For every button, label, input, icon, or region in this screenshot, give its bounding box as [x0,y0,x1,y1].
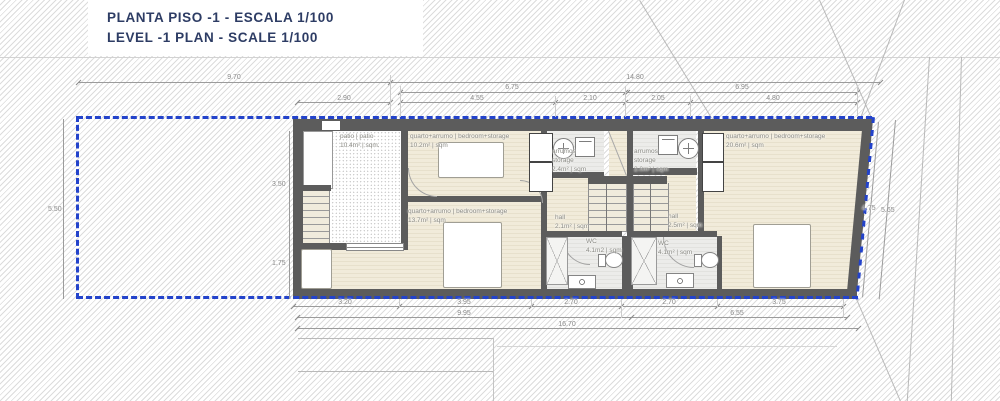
extension-line [400,86,401,117]
dim-line [400,92,625,93]
dim-line [297,328,858,329]
dim-label: 2.70 [564,299,578,306]
staircase-left [588,183,627,232]
room-label-bedroom-storage-3: quarto+arrumo | bedroom+storage 20.6m² |… [726,133,825,151]
dim-label: 2.05 [651,95,665,102]
room-label-bedroom-storage-2: quarto+arrumo | bedroom+storage 13.7m² |… [408,208,507,226]
dim-label: 4.75 [862,205,876,212]
dim-label: 2.70 [662,299,676,306]
dim-line [531,306,621,307]
dim-label: 3.20 [338,299,352,306]
bed-icon [753,224,811,288]
extension-line [621,299,622,318]
washing-machine-icon [678,138,699,159]
window-patio [346,243,404,251]
dim-label: 1.75 [272,260,286,267]
door-opening-patio [322,121,340,130]
dim-label: 3.50 [272,181,286,188]
dim-line [690,102,857,103]
dim-line [627,317,847,318]
dim-line [555,102,625,103]
dim-line [390,82,880,83]
closet-icon [529,162,553,192]
extension-line [555,96,556,117]
cabinet-icon [301,249,332,289]
stair-rail [606,183,607,232]
shower-icon [631,237,657,285]
dim-label: 3.95 [457,299,471,306]
sink-icon [568,275,596,289]
room-label-storage-1: arrumos storage 2.4m² | sqm [552,148,586,174]
extension-line [625,86,626,117]
site-line [298,371,493,372]
dim-label: 16.70 [558,321,576,328]
dim-label: 6.75 [505,84,519,91]
dim-label: 14.80 [626,74,644,81]
sink-icon [666,273,694,288]
room-label-patio: patio | patio 10.4m² | sqm. [340,133,380,151]
room-label-bedroom-storage-1: quarto+arrumo | bedroom+storage 10.2m² |… [410,133,509,151]
dim-line [289,131,290,243]
property-line-top [77,116,872,119]
bed-icon [443,222,502,288]
extension-line [690,96,691,117]
site-line [497,346,837,347]
dim-label: 6.55 [730,310,744,317]
room-label-wc-1: WC 4.1m2 | sqm [586,238,622,256]
extension-line [843,299,844,318]
dim-label: 2.90 [337,95,351,102]
dim-label: 9.95 [457,310,471,317]
wall-wc1-right [622,236,627,289]
dim-line [627,92,857,93]
dim-line [63,119,64,299]
extension-line [717,299,718,307]
dim-line [289,243,290,299]
floor-plan-canvas: PLANTA PISO -1 - ESCALA 1/100 LEVEL -1 P… [0,0,1000,401]
dim-line [399,306,531,307]
dim-label: 4.80 [766,95,780,102]
wall-stair-landing-left [588,176,627,184]
dim-label: 3.75 [772,299,786,306]
dim-label: 2.10 [583,95,597,102]
site-line [493,338,494,401]
wall-top [293,119,872,131]
dim-label: 9.70 [227,74,241,81]
closet-icon [702,162,724,192]
plan-title-pt: PLANTA PISO -1 - ESCALA 1/100 [107,8,423,28]
closet-icon [529,133,553,162]
stair-rail [650,183,651,232]
extension-line [390,75,391,117]
dim-label: 5.65 [881,207,895,214]
shower-icon [546,237,568,285]
dim-line [297,102,390,103]
wall-patio-right [401,131,408,250]
extension-line [399,299,400,307]
dim-line [297,317,631,318]
extension-line [857,86,858,117]
dim-label: 5.50 [48,206,62,213]
extension-line [531,299,532,307]
dim-label: 6.95 [735,84,749,91]
dim-line [293,306,399,307]
dim-line [78,82,390,83]
closet-icon [702,133,724,162]
room-label-storage-2: arrumos storage 2.0m² | sqm [634,148,668,174]
room-label-wc-2: WC 4.1m² | sqm [658,240,692,258]
room-label-hall-1: hall 2.1m² | sqm [555,214,589,232]
room-label-hall-2: hall 2.5m² | sqm [668,213,702,231]
site-line [0,57,1000,58]
stair-landing [303,131,333,189]
wall-patio-stair [296,185,331,191]
toilet-icon [701,252,719,268]
wall-stair-landing-right [633,176,667,184]
property-line-left [76,116,79,299]
dim-label: 4.55 [470,95,484,102]
dim-line [400,102,555,103]
plan-title-en: LEVEL -1 PLAN - SCALE 1/100 [107,28,423,48]
site-line [298,338,493,339]
dim-line [717,306,843,307]
dim-line [627,102,690,103]
room-bedroom-storage-2 [303,250,541,289]
dim-line [623,306,717,307]
title-block: PLANTA PISO -1 - ESCALA 1/100 LEVEL -1 P… [88,0,423,56]
staircase-right [633,183,669,232]
